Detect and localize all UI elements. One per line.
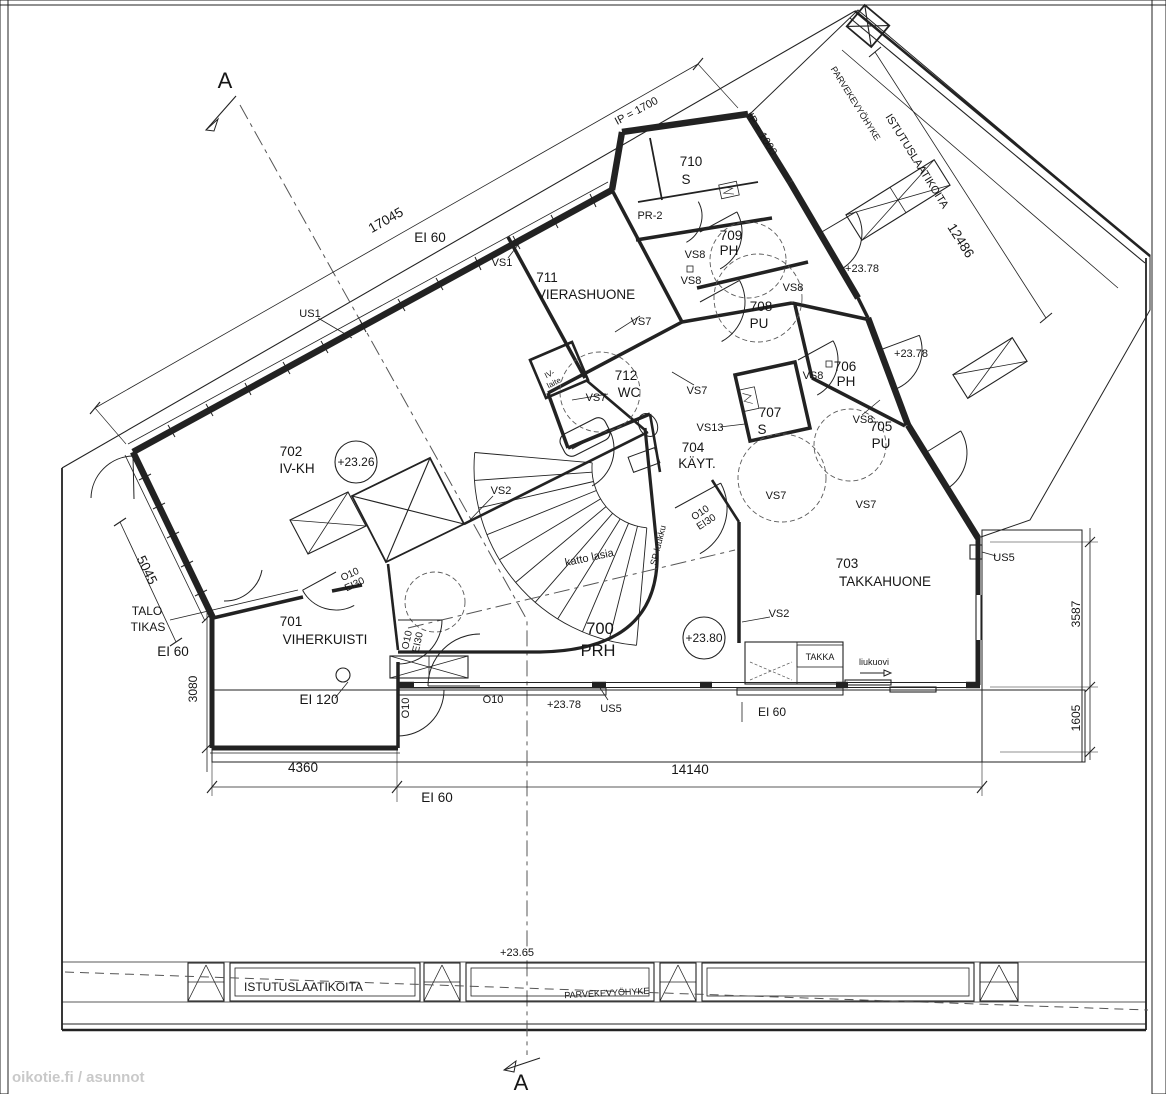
- wall-tag-vs7-a: VS7: [631, 316, 652, 328]
- parvekevyohyke-right: PARVEKEVYÖHYKE: [829, 65, 883, 143]
- room-number-708: 708: [750, 299, 773, 314]
- dim-ip1700: IP = 1700: [613, 95, 660, 128]
- site-boundary: [62, 5, 1150, 1030]
- level-23-26: +23.26: [337, 455, 374, 469]
- wall-tag-vs8-c: VS8: [783, 282, 804, 294]
- pr2-label: PR-2: [637, 210, 662, 222]
- wall-tag-vs8-d: VS8: [803, 370, 824, 382]
- level-23-78-b: +23.78: [894, 348, 928, 360]
- prh-south-wall: [398, 680, 980, 695]
- dim-3587: 3587: [1069, 600, 1083, 627]
- room-number-707: 707: [759, 405, 782, 420]
- dim-1605: 1605: [1069, 704, 1083, 731]
- fixture-symbol: [687, 266, 693, 272]
- wall-tag-vs2-b: VS2: [769, 608, 790, 620]
- room-name-704: KÄYT.: [678, 456, 716, 471]
- room-number-709: 709: [720, 228, 743, 243]
- labels: A A 700 PRH 701 VIHERKUISTI 702 IV-KH 70…: [131, 65, 1083, 1094]
- wall-tag-us5-a: US5: [993, 552, 1014, 564]
- wall-tag-us1: US1: [299, 308, 320, 320]
- appliance-710: [719, 181, 740, 198]
- room-name-700: PRH: [581, 642, 616, 660]
- viewer-edge-left: [0, 0, 8, 1094]
- watermark: oikotie.fi / asunnot: [12, 1069, 145, 1086]
- floor-plan-page: A A 700 PRH 701 VIHERKUISTI 702 IV-KH 70…: [0, 0, 1166, 1094]
- talo-tikas-line2: TIKAS: [131, 620, 166, 634]
- wall-tag-us5-b: US5: [600, 703, 621, 715]
- floor-plan-drawing: A A 700 PRH 701 VIHERKUISTI 702 IV-KH 70…: [0, 0, 1166, 1094]
- planter-gable-box: [980, 963, 1018, 1001]
- bottom-planter-row: [62, 962, 1148, 1010]
- dim-14140: 14140: [671, 762, 709, 777]
- parvekevyohyke-bottom: PARVEKEVYÖHYKE: [564, 986, 650, 1000]
- room-number-706: 706: [834, 359, 857, 374]
- sliding-door-arrow: [860, 670, 891, 676]
- planter-gable-box: [424, 963, 460, 1001]
- dim-12486: 12486: [945, 221, 978, 261]
- room-name-702: IV-KH: [279, 461, 314, 476]
- turning-circles: [405, 222, 886, 632]
- fireplace-unit: [745, 642, 843, 684]
- dim-3080: 3080: [186, 675, 200, 702]
- glass-roof-edge: [398, 428, 657, 652]
- fire-ei60-left: EI 60: [157, 644, 189, 659]
- exterior-walls: [125, 114, 981, 753]
- room-number-710: 710: [680, 154, 703, 169]
- room-number-711: 711: [536, 270, 558, 285]
- fire-ei60-right: EI 60: [758, 705, 786, 719]
- fixture-symbol: [826, 361, 832, 367]
- level-23-65: +23.65: [500, 947, 534, 959]
- room-number-701: 701: [280, 614, 303, 629]
- smoke-hatch: [628, 448, 660, 473]
- door-tag-o10-ei30-c: O10 EI30: [689, 503, 719, 533]
- wall-tag-vs7-c: VS7: [687, 385, 708, 397]
- katto-lasia-label: katto lasia: [564, 547, 616, 569]
- talo-tikas-line1: TALO: [132, 604, 162, 618]
- wall-tag-vs13: VS13: [697, 422, 724, 434]
- section-marker-top: A: [218, 68, 233, 93]
- istutuslaatikoita-bottom: ISTUTUSLAATIKOITA: [244, 980, 363, 994]
- room-number-712: 712: [615, 368, 638, 383]
- sp-luukku-label: SP-luukku: [648, 524, 668, 566]
- door-tag-o10-d: O10: [400, 698, 412, 719]
- room-name-703: TAKKAHUONE: [839, 574, 931, 589]
- wall-tag-vs8-e: VS8: [853, 414, 874, 426]
- istutuslaatikoita-right: ISTUTUSLAATIKOITA: [883, 112, 951, 211]
- elevator-shaft: [352, 458, 464, 562]
- section-marker-bottom: A: [514, 1070, 529, 1094]
- level-23-78-a: +23.78: [845, 263, 879, 275]
- level-23-78-c: +23.78: [547, 699, 581, 711]
- dim-17045: 17045: [366, 204, 406, 236]
- wall-tag-vs1: VS1: [492, 257, 513, 269]
- room-name-712: WC: [618, 385, 641, 400]
- dim-ip1000: IP = 1000: [744, 111, 779, 157]
- doors: [91, 202, 967, 736]
- room-name-710: S: [681, 172, 690, 187]
- room-name-706: PH: [837, 374, 856, 389]
- column: [336, 668, 350, 682]
- room-name-701: VIHERKUISTI: [283, 632, 368, 647]
- staircase: [474, 453, 647, 646]
- room-name-705: PU: [872, 436, 891, 451]
- dim-5045: 5045: [134, 553, 161, 587]
- corner-monument: [847, 5, 890, 47]
- door-tag-o10-ei30-b: O10 EI30: [400, 628, 426, 653]
- viewer-edge-right: [1152, 0, 1166, 1094]
- planter-gable-box: [188, 963, 224, 1001]
- wall-tag-vs8-b: VS8: [681, 275, 702, 287]
- room-number-700: 700: [586, 620, 614, 638]
- room-name-711: VIERASHUONE: [537, 287, 635, 302]
- fire-ei120: EI 120: [299, 692, 338, 707]
- wall-tag-vs2-a: VS2: [491, 485, 512, 497]
- dim-4360: 4360: [288, 760, 318, 775]
- door-tag-o10-e: O10: [483, 694, 504, 706]
- wall-tag-vs8-a: VS8: [685, 249, 706, 261]
- wall-tag-vs7-d: VS7: [766, 490, 787, 502]
- fire-ei60-top: EI 60: [414, 230, 446, 245]
- room-number-703: 703: [836, 556, 859, 571]
- room-name-709: PH: [720, 243, 739, 258]
- dimension-lines: [90, 47, 1098, 802]
- fire-ei60-bottom: EI 60: [421, 790, 453, 805]
- planter-gable-box: [660, 963, 696, 1001]
- room-number-704: 704: [682, 440, 705, 455]
- viewer-edge-top: [0, 0, 1166, 5]
- wall-tag-vs7-b: VS7: [586, 392, 607, 404]
- takka-label: TAKKA: [806, 652, 835, 662]
- room-name-708: PU: [750, 316, 769, 331]
- room-number-702: 702: [280, 444, 303, 459]
- room-name-707: S: [757, 422, 766, 437]
- level-23-80: +23.80: [685, 631, 722, 645]
- wall-tag-vs7-e: VS7: [856, 499, 877, 511]
- ne-planter: [953, 338, 1027, 399]
- liukuovi-label: liukuovi: [859, 657, 889, 667]
